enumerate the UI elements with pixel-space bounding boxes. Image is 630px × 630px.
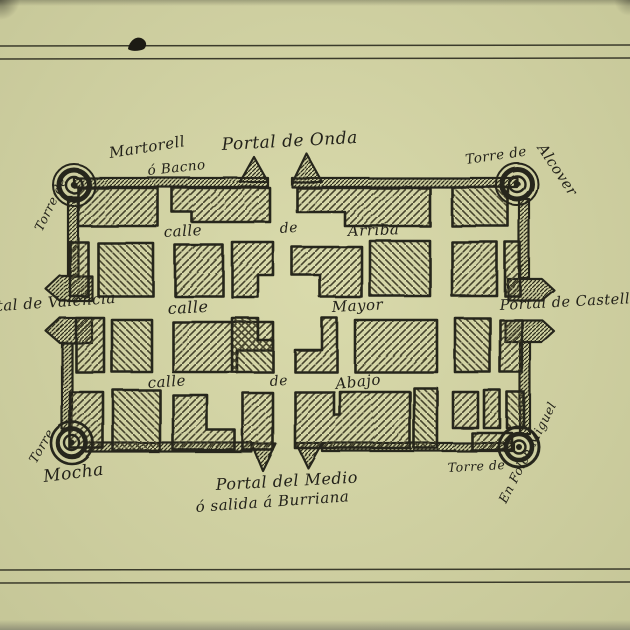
city-block (355, 320, 437, 372)
city-block (173, 395, 235, 450)
city-block (76, 318, 104, 372)
north-gate-bastion-right (292, 153, 322, 182)
city-block (370, 241, 430, 296)
city-block (455, 318, 490, 372)
town-plan-map: Portal de Onda Portal de Valencia Portal… (0, 0, 630, 630)
label-torre-se-prefix: Torre de (447, 457, 505, 475)
city-block (175, 245, 223, 296)
label-calle-abajo-word2: de (269, 373, 288, 390)
city-block (297, 188, 430, 226)
top-rule-1 (0, 45, 630, 46)
city-block (452, 242, 497, 296)
tower-sw-mocha (51, 422, 93, 464)
city-block (295, 392, 410, 448)
scanned-page: Portal de Onda Portal de Valencia Portal… (0, 0, 630, 630)
map-geometry (46, 153, 554, 471)
label-calle-abajo-word3: Abajo (333, 370, 382, 393)
tower-ne-alcover (496, 163, 538, 205)
city-block (414, 388, 437, 448)
bottom-rule-1 (0, 569, 630, 570)
label-portal-valencia: Portal de Valencia (0, 289, 116, 317)
label-torre-ne-name: Alcover (533, 140, 581, 200)
label-torre-ne-prefix: Torre de (464, 144, 528, 168)
city-block (112, 320, 152, 372)
north-gate-bastion-left (240, 157, 268, 182)
city-block (507, 392, 524, 428)
city-block (484, 390, 500, 428)
label-calle-arriba-word1: calle (163, 221, 202, 241)
wall-north-right (292, 178, 517, 187)
city-block (113, 390, 160, 451)
city-block (292, 247, 362, 297)
city-block (453, 392, 478, 428)
bottom-rule-2 (0, 582, 630, 583)
label-calle-arriba-word3: Arriba (346, 220, 400, 240)
label-calle-mayor-word1: calle (167, 297, 209, 318)
label-calle-arriba-word2: de (279, 220, 298, 237)
city-blocks-row-3 (76, 318, 522, 372)
city-block (500, 320, 522, 372)
top-rule-2 (0, 58, 630, 59)
wall-north-left (74, 178, 268, 187)
city-blocks-row-2 (70, 241, 520, 297)
city-block (243, 393, 273, 450)
label-torre-nw-name: Martorell (107, 132, 187, 162)
city-block (78, 188, 158, 226)
label-portal-onda: Portal de Onda (220, 128, 358, 155)
city-blocks-row-south (70, 388, 524, 451)
city-block (98, 243, 153, 296)
city-block (452, 187, 508, 226)
label-calle-abajo-word1: calle (147, 371, 186, 392)
city-block (70, 242, 88, 296)
city-block (295, 318, 337, 372)
city-block (505, 242, 520, 296)
city-block (172, 188, 270, 222)
city-block (232, 242, 273, 297)
label-torre-sw-name: Mocha (41, 460, 105, 487)
ink-blot (128, 38, 146, 51)
label-calle-mayor-word2: Mayor (330, 295, 384, 316)
label-torre-nw-alias: ó Bacno (147, 157, 207, 179)
